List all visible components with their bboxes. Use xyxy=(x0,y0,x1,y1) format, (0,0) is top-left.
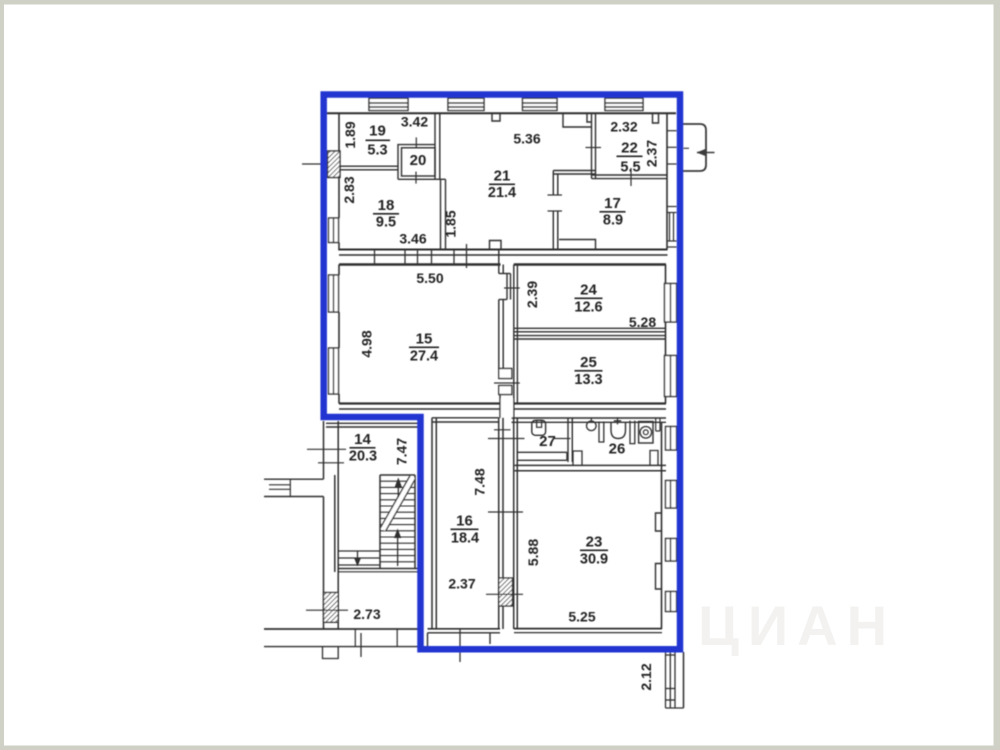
svg-text:21: 21 xyxy=(494,168,511,185)
svg-text:12.6: 12.6 xyxy=(574,300,602,316)
svg-text:5.25: 5.25 xyxy=(568,609,595,625)
svg-text:2.37: 2.37 xyxy=(448,576,475,592)
svg-text:18.4: 18.4 xyxy=(451,531,479,547)
svg-text:4.98: 4.98 xyxy=(359,330,375,357)
svg-text:21.4: 21.4 xyxy=(488,185,516,201)
svg-text:16: 16 xyxy=(456,513,473,530)
svg-text:5.36: 5.36 xyxy=(513,131,540,147)
svg-text:20: 20 xyxy=(410,152,427,169)
svg-text:19: 19 xyxy=(369,123,386,140)
svg-text:1.89: 1.89 xyxy=(342,121,358,148)
svg-text:ЦИАН: ЦИАН xyxy=(698,594,896,657)
svg-text:5.3: 5.3 xyxy=(367,143,387,159)
svg-text:5.28: 5.28 xyxy=(629,314,656,330)
svg-text:24: 24 xyxy=(580,282,597,299)
svg-text:2.37: 2.37 xyxy=(644,140,660,167)
svg-text:3.42: 3.42 xyxy=(401,114,428,130)
svg-text:27.4: 27.4 xyxy=(410,349,438,365)
svg-text:14: 14 xyxy=(354,431,371,448)
svg-text:7.47: 7.47 xyxy=(394,438,410,465)
svg-text:2.73: 2.73 xyxy=(353,606,380,622)
svg-text:13.3: 13.3 xyxy=(574,372,602,388)
svg-text:8.9: 8.9 xyxy=(603,213,623,229)
svg-text:25: 25 xyxy=(580,354,597,371)
svg-text:23: 23 xyxy=(586,534,603,551)
svg-text:2.32: 2.32 xyxy=(610,119,637,135)
svg-text:9.5: 9.5 xyxy=(376,215,396,231)
svg-text:20.3: 20.3 xyxy=(349,449,377,465)
svg-text:2.39: 2.39 xyxy=(524,281,540,308)
svg-text:3.46: 3.46 xyxy=(399,231,426,247)
svg-text:27: 27 xyxy=(539,433,556,450)
svg-text:18: 18 xyxy=(378,197,395,214)
svg-text:2.12: 2.12 xyxy=(638,663,654,690)
svg-text:17: 17 xyxy=(604,195,621,212)
svg-text:5.88: 5.88 xyxy=(525,539,541,566)
svg-text:5.5: 5.5 xyxy=(620,160,640,176)
svg-text:5.50: 5.50 xyxy=(416,270,443,286)
svg-text:22: 22 xyxy=(621,140,638,157)
svg-text:7.48: 7.48 xyxy=(472,468,488,495)
svg-text:1.85: 1.85 xyxy=(443,210,459,237)
svg-text:15: 15 xyxy=(416,331,433,348)
svg-text:2.83: 2.83 xyxy=(341,176,357,203)
svg-text:26: 26 xyxy=(609,441,626,458)
svg-text:30.9: 30.9 xyxy=(580,552,608,568)
